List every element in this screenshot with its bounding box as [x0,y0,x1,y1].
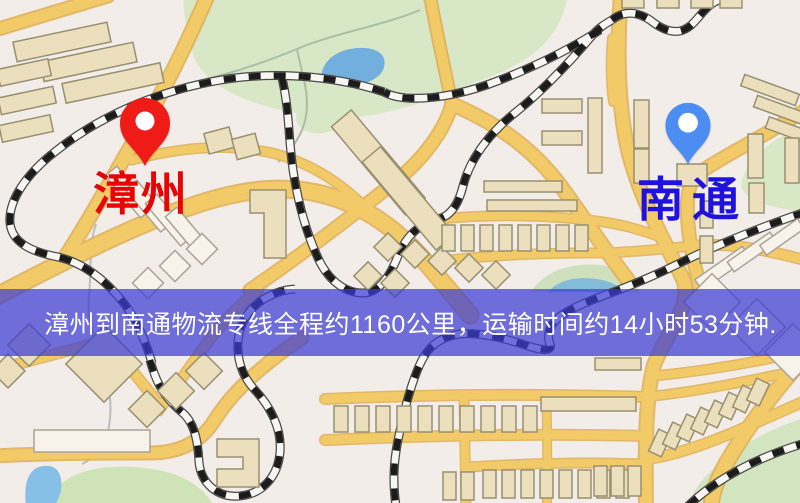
blue-location-pin-icon [664,102,712,165]
destination-marker[interactable] [664,102,712,165]
route-banner: 漳州到南通物流专线全程约1160公里，运输时间约14小时53分钟. [0,289,800,356]
origin-marker[interactable] [118,97,172,167]
route-banner-text: 漳州到南通物流专线全程约1160公里，运输时间约14小时53分钟. [0,305,777,341]
origin-label: 漳州 [93,172,189,218]
red-location-pin-icon [118,97,172,167]
route-map-image: 漳州 南通 漳州到南通物流专线全程约1160公里，运输时间约14小时53分钟. [0,0,800,503]
map-illustration [0,0,800,503]
destination-label: 南通 [637,178,747,225]
